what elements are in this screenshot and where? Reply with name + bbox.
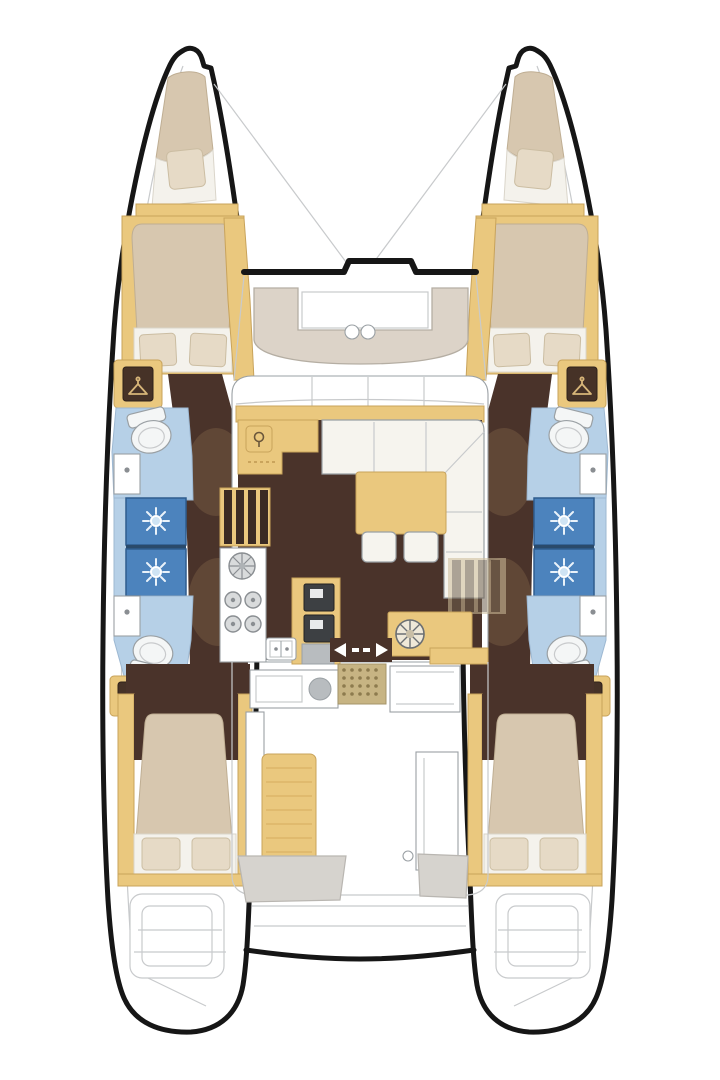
stool xyxy=(362,532,396,562)
stool xyxy=(404,532,438,562)
foredeck-lounge-cushion xyxy=(254,288,468,364)
round-sink-icon xyxy=(229,553,255,579)
saloon-table xyxy=(356,472,446,534)
cupholder xyxy=(345,325,359,339)
catamaran-floor-plan xyxy=(0,0,720,1080)
shower-stall xyxy=(126,498,186,545)
deck-fitting xyxy=(403,851,413,861)
nav-locker xyxy=(246,426,272,452)
starboard-companionway-steps xyxy=(448,558,506,614)
galley-module xyxy=(302,644,334,664)
port-companionway-steps xyxy=(220,488,270,546)
aft-counter-shelf xyxy=(430,648,488,664)
forepeak-pillow xyxy=(166,148,206,190)
vanity-sink xyxy=(114,596,140,636)
faucet-dot xyxy=(124,609,129,614)
island-sink-module xyxy=(304,584,334,611)
forward-crossbeam xyxy=(244,261,476,272)
shower-rose-icon xyxy=(143,508,169,534)
small-sink xyxy=(266,638,296,660)
round-sink-icon xyxy=(396,620,424,648)
forward-wardrobe xyxy=(114,360,162,408)
forward-berth-mattress xyxy=(132,224,233,332)
aft-seat xyxy=(418,854,468,898)
cockpit-wetbar xyxy=(250,670,338,708)
floor-plan-canvas xyxy=(0,0,720,1080)
aft-berth-pillow xyxy=(192,838,230,870)
aft-crossbeam xyxy=(246,950,474,959)
foredeck xyxy=(214,84,506,380)
cockpit-sink xyxy=(309,678,331,700)
vanity-sink xyxy=(114,454,140,494)
aft-seat xyxy=(238,856,346,902)
island-sink-module xyxy=(304,615,334,642)
faucet-dot xyxy=(124,467,129,472)
aft-cabin-frame-left xyxy=(118,694,134,878)
cockpit-table xyxy=(262,754,316,862)
stern xyxy=(246,906,474,959)
cockpit-bench-starboard xyxy=(416,752,458,870)
forward-bathroom xyxy=(112,406,193,500)
foredeck-seat-outline xyxy=(302,292,428,328)
cockpit xyxy=(232,662,488,902)
sliding-door xyxy=(330,638,392,662)
aft-berth-pillow xyxy=(142,838,180,870)
shower-rose-icon xyxy=(143,559,169,585)
saloon xyxy=(220,376,506,664)
cockpit-side-locker xyxy=(390,666,460,712)
cockpit-bench-port xyxy=(246,712,264,864)
doormat-icon xyxy=(338,664,386,704)
forward-berth-pillow xyxy=(189,333,227,367)
aft-berth-mattress xyxy=(136,714,232,840)
cupholder xyxy=(361,325,375,339)
shower-stall xyxy=(126,549,186,596)
